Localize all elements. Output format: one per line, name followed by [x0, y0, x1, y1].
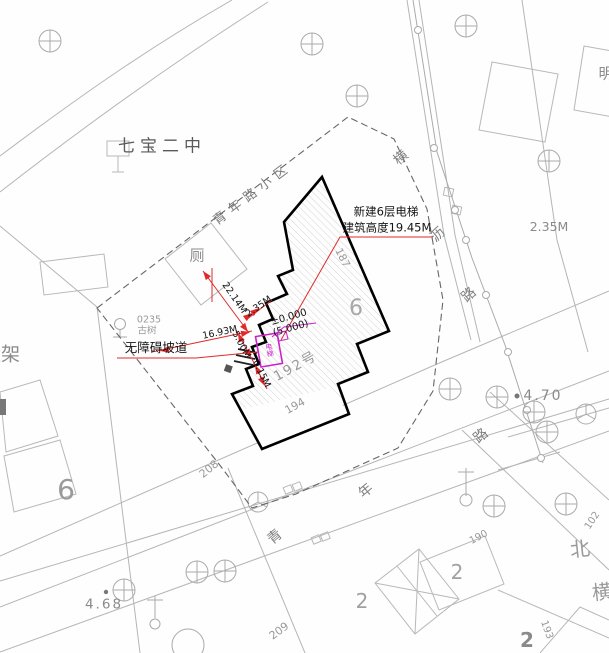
lamp-symbol: [458, 468, 474, 506]
ramp-label: 无障碍坡道: [125, 342, 188, 355]
block-number-2a: 2: [451, 562, 464, 582]
spot-elevation-road-east: 2.35M: [530, 221, 569, 234]
left-edge-cut-label: 栓架: [0, 346, 20, 365]
site-plan-drawing: 七宝二中 青年路小区 新建6层电梯 建筑高度19.45M 2.35M 厕 22.…: [0, 0, 609, 653]
block-number-2c: 2: [520, 630, 534, 650]
school-label: 七宝二中: [118, 139, 206, 156]
ancient-tree-symbol: [113, 319, 127, 338]
ancient-tree-id: 0235: [137, 315, 161, 325]
block-number-west: 6: [57, 476, 75, 504]
road-beiheng-char2: 横: [591, 581, 609, 603]
lamp-symbol: [147, 596, 163, 629]
road-beiheng-char1: 北: [569, 538, 591, 560]
spot-elevation-southwest: 4.68: [85, 598, 123, 612]
annotation-line1: 新建6层电梯: [354, 206, 419, 218]
spot-elevation-east: 4.70: [523, 389, 562, 403]
marker-square: [224, 364, 233, 373]
toilet-label: 厕: [189, 249, 204, 264]
elevator-box-label: 电梯: [264, 342, 273, 357]
main-building: [0, 177, 389, 449]
edge-block: [0, 399, 6, 415]
annotation-line2: 建筑高度19.45M: [343, 222, 432, 234]
top-right-cut-label: 明: [598, 67, 609, 82]
tree-canopy: [172, 629, 204, 653]
ancient-tree-label: 古树: [137, 326, 156, 336]
block-number-in-building: 6: [349, 298, 363, 320]
block-number-2b: 2: [356, 591, 369, 611]
